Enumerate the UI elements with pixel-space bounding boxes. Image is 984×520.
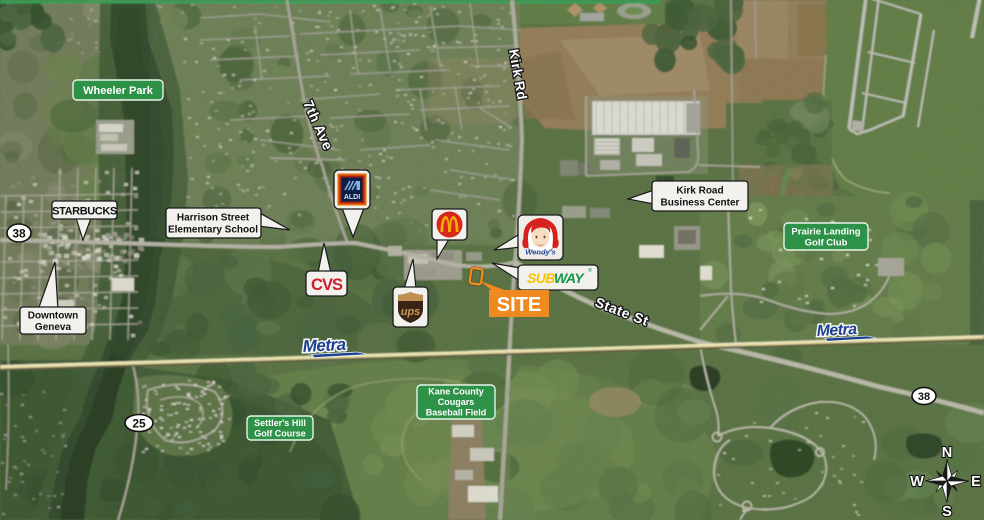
svg-text:Harrison Street: Harrison Street [177,213,250,224]
svg-text:ups: ups [401,306,421,318]
svg-text:N: N [942,445,952,461]
svg-text:®: ® [588,267,592,274]
svg-text:Kirk Road: Kirk Road [676,186,723,197]
svg-text:SUB: SUB [527,270,555,286]
svg-text:Business Center: Business Center [661,198,740,209]
svg-text:S: S [942,504,952,520]
svg-text:WAY: WAY [554,270,585,286]
svg-text:STARBUCKS: STARBUCKS [52,206,117,218]
svg-text:SITE: SITE [497,294,541,316]
svg-text:38: 38 [918,391,930,403]
svg-text:ALDI: ALDI [344,194,360,201]
svg-text:Wheeler Park: Wheeler Park [83,85,154,97]
svg-text:W: W [910,474,924,490]
svg-text:Golf Club: Golf Club [805,237,848,248]
svg-text:CVS: CVS [311,276,343,294]
svg-text:Prairie Landing: Prairie Landing [791,226,860,237]
svg-text:Golf Course: Golf Course [254,429,306,439]
svg-text:Settler's Hill: Settler's Hill [254,418,306,428]
svg-text:Cougars: Cougars [438,397,475,407]
svg-text:E: E [971,474,981,490]
svg-text:Wendy's: Wendy's [525,248,555,257]
svg-text:Kane County: Kane County [428,387,484,397]
svg-text:Downtown: Downtown [28,311,79,322]
svg-text:25: 25 [132,416,146,430]
svg-text:Baseball Field: Baseball Field [426,408,487,418]
svg-text:Elementary School: Elementary School [168,225,258,236]
svg-text:38: 38 [12,226,26,240]
svg-text:Geneva: Geneva [35,322,72,333]
